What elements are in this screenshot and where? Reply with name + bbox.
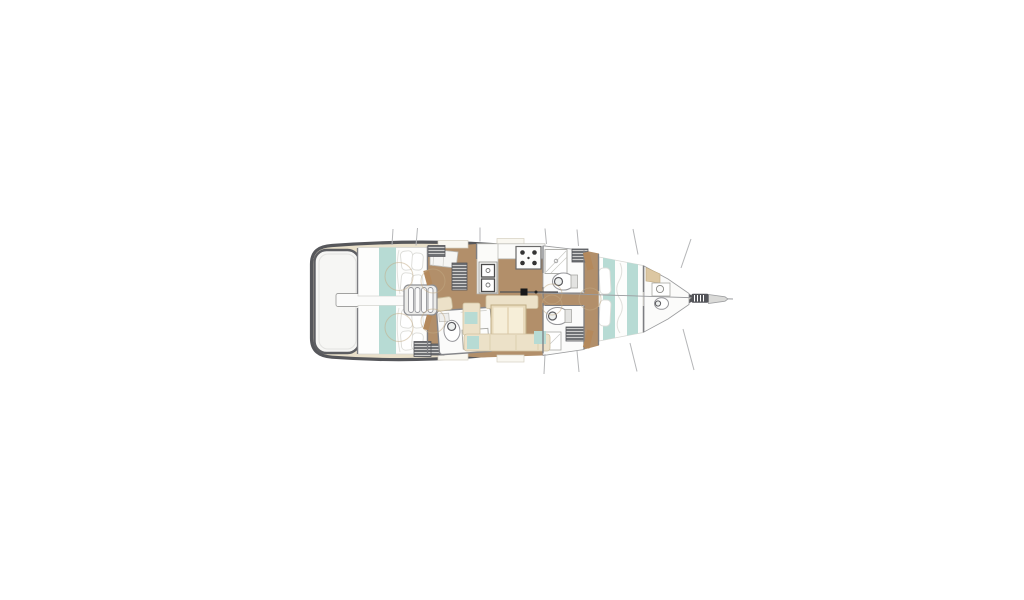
locker-hatch	[566, 327, 584, 341]
pillow	[411, 253, 423, 271]
bowsprit-tip	[709, 295, 729, 304]
rigging-line	[630, 343, 637, 372]
rigging-line	[545, 229, 547, 245]
mast-foot	[521, 289, 528, 296]
bowsprit	[692, 294, 729, 304]
forward-head	[644, 266, 689, 332]
locker-hatch	[428, 246, 445, 257]
pillow	[599, 268, 611, 295]
rigging-line	[577, 230, 579, 247]
sink-bowl	[482, 279, 495, 292]
head-port	[543, 246, 588, 293]
forward-cabin	[599, 257, 643, 341]
boat-floor-plan	[0, 0, 1024, 600]
locker	[646, 268, 660, 284]
rigging-line	[681, 239, 691, 268]
washbasin	[656, 285, 663, 292]
locker-hatch	[452, 263, 467, 290]
page	[0, 0, 1024, 600]
rigging-line	[633, 229, 638, 255]
pillow	[599, 300, 611, 327]
rigging-line	[683, 329, 694, 370]
rigging-line	[544, 354, 545, 374]
locker-hatch	[414, 342, 431, 357]
companionway-steps	[404, 285, 437, 315]
sink-bowl	[482, 265, 495, 278]
rigging-line	[577, 351, 579, 372]
